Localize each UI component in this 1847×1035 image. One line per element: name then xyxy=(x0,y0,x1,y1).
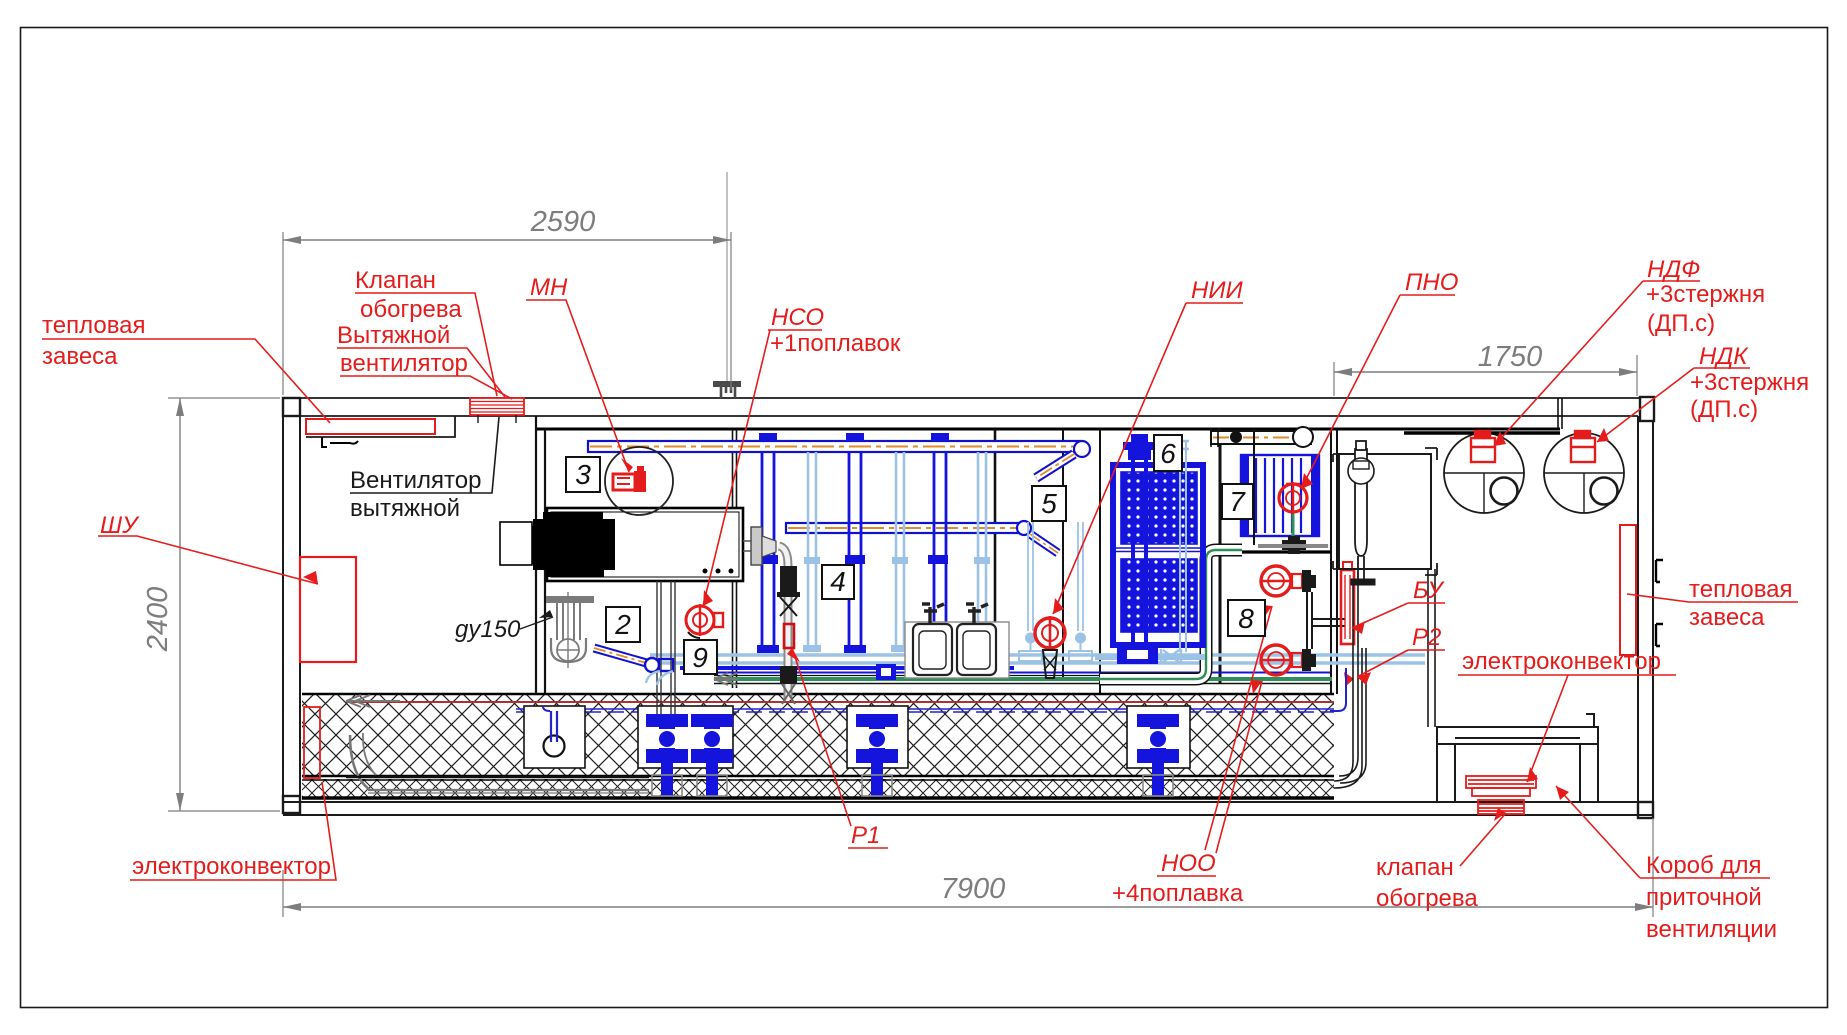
svg-text:завеса: завеса xyxy=(42,343,118,370)
svg-text:НСО: НСО xyxy=(771,304,824,331)
svg-text:вентиляции: вентиляции xyxy=(1646,916,1777,943)
svg-text:4: 4 xyxy=(830,566,846,597)
svg-text:9: 9 xyxy=(692,642,708,673)
svg-text:электроконвектор: электроконвектор xyxy=(132,853,331,880)
svg-text:7900: 7900 xyxy=(941,873,1006,905)
svg-text:Короб для: Короб для xyxy=(1646,852,1761,879)
svg-text:7: 7 xyxy=(1229,486,1246,517)
svg-text:+1поплавок: +1поплавок xyxy=(770,330,901,357)
svg-text:1750: 1750 xyxy=(1478,341,1543,373)
svg-text:Вытяжной: Вытяжной xyxy=(337,322,450,349)
svg-text:электроконвектор: электроконвектор xyxy=(1462,648,1661,675)
svg-text:обогрева: обогрева xyxy=(360,296,462,323)
svg-text:НДФ: НДФ xyxy=(1647,256,1700,283)
svg-text:НИИ: НИИ xyxy=(1191,277,1244,304)
svg-text:ПНО: ПНО xyxy=(1405,269,1458,296)
svg-text:БУ: БУ xyxy=(1413,577,1445,604)
svg-text:2400: 2400 xyxy=(142,587,174,653)
svg-text:НОО: НОО xyxy=(1161,850,1216,877)
svg-text:8: 8 xyxy=(1238,603,1254,634)
svg-text:ШУ: ШУ xyxy=(100,512,140,539)
svg-text:МН: МН xyxy=(530,274,568,301)
svg-text:Вентилятор: Вентилятор xyxy=(350,467,481,494)
svg-text:gy150: gy150 xyxy=(455,616,521,643)
svg-text:2590: 2590 xyxy=(530,206,596,238)
svg-text:завеса: завеса xyxy=(1689,604,1765,631)
svg-text:тепловая: тепловая xyxy=(1689,576,1793,603)
svg-text:2: 2 xyxy=(614,609,631,640)
svg-text:P1: P1 xyxy=(851,822,880,849)
svg-text:3: 3 xyxy=(575,459,591,490)
svg-text:обогрева: обогрева xyxy=(1376,885,1478,912)
svg-text:P2: P2 xyxy=(1412,624,1441,651)
svg-text:+3стержня: +3стержня xyxy=(1690,369,1809,396)
svg-text:вентилятор: вентилятор xyxy=(340,350,468,377)
svg-text:6: 6 xyxy=(1160,438,1176,469)
svg-text:НДК: НДК xyxy=(1699,343,1749,370)
svg-text:+4поплавка: +4поплавка xyxy=(1112,880,1244,907)
svg-text:5: 5 xyxy=(1041,488,1057,519)
svg-text:(ДП.с): (ДП.с) xyxy=(1690,396,1758,423)
svg-text:приточной: приточной xyxy=(1646,884,1762,911)
svg-text:вытяжной: вытяжной xyxy=(350,495,460,522)
svg-text:(ДП.с): (ДП.с) xyxy=(1647,310,1715,337)
svg-text:+3стержня: +3стержня xyxy=(1646,281,1765,308)
svg-text:Клапан: Клапан xyxy=(355,267,436,294)
svg-text:клапан: клапан xyxy=(1376,854,1454,881)
svg-text:тепловая: тепловая xyxy=(42,312,146,339)
